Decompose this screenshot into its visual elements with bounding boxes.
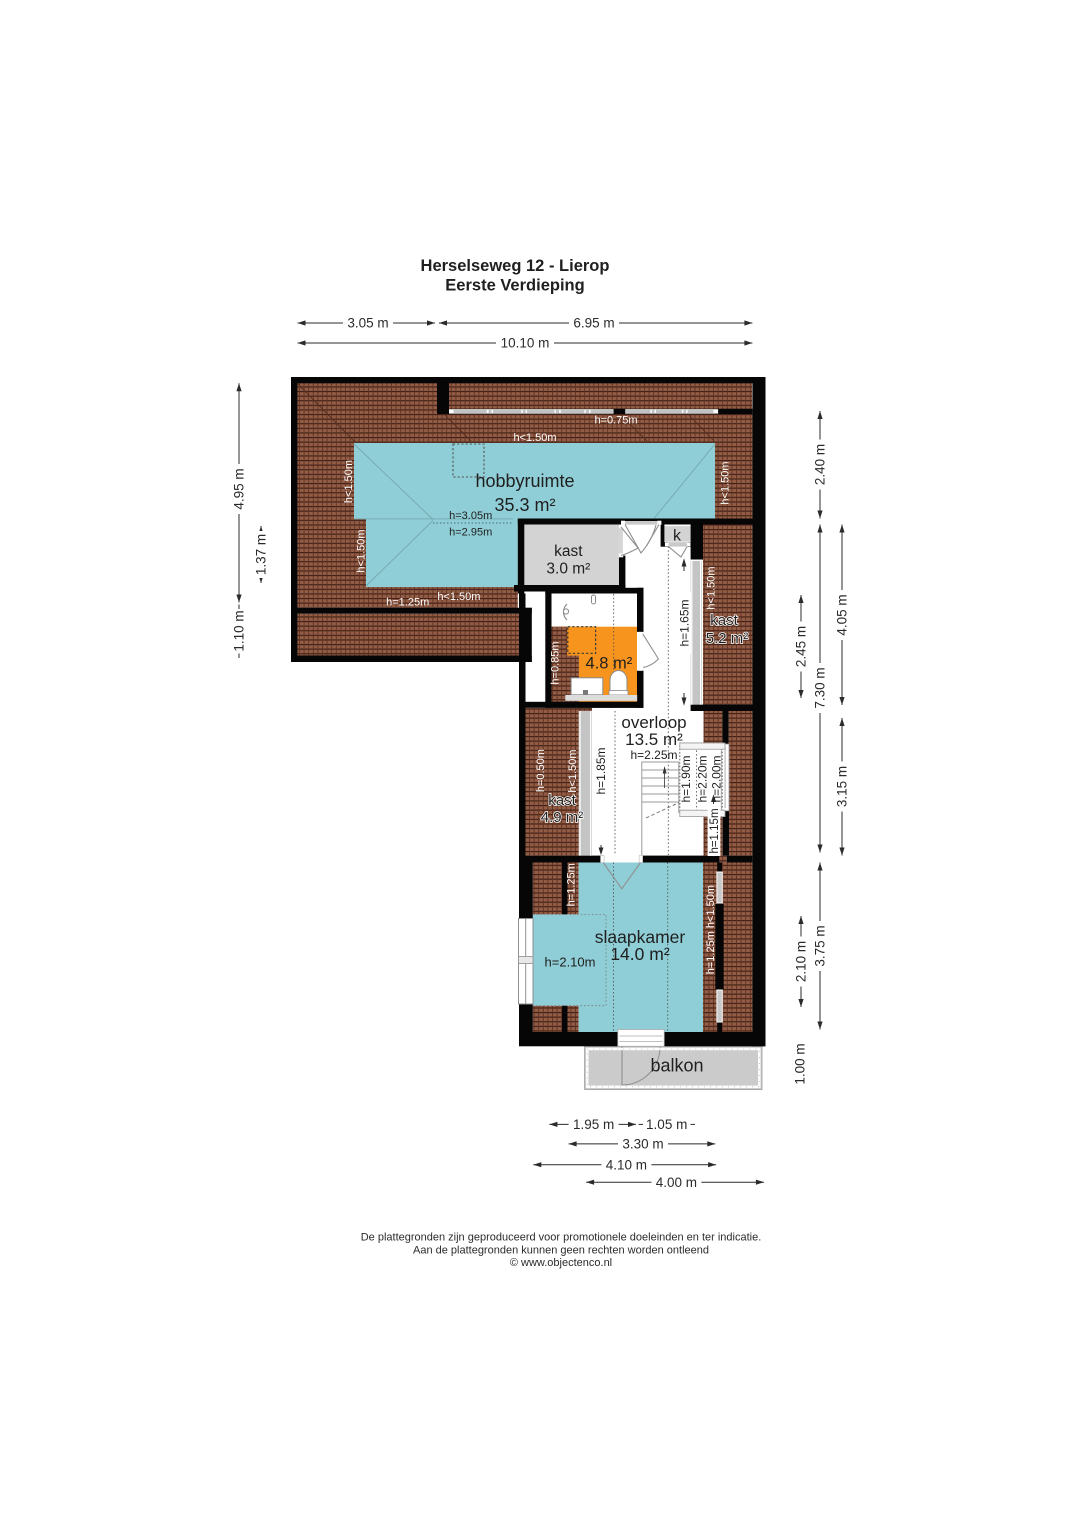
svg-text:balkon: balkon (650, 1056, 703, 1076)
svg-text:3.05 m: 3.05 m (347, 316, 388, 331)
svg-text:h=1.25m: h=1.25m (566, 863, 578, 906)
svg-text:13.5 m²: 13.5 m² (625, 730, 683, 749)
svg-text:h=1.90m: h=1.90m (679, 755, 693, 802)
svg-text:6.95 m: 6.95 m (573, 316, 614, 331)
svg-text:4.9 m²: 4.9 m² (541, 809, 584, 826)
svg-text:h=3.05m: h=3.05m (449, 510, 492, 522)
svg-text:h=2.95m: h=2.95m (449, 527, 492, 539)
svg-text:14.0 m²: 14.0 m² (610, 944, 669, 964)
svg-text:h=1.25m: h=1.25m (386, 597, 429, 609)
svg-text:h<1.50m: h<1.50m (437, 591, 480, 603)
svg-text:4.00 m: 4.00 m (656, 1175, 697, 1190)
svg-text:4.95 m: 4.95 m (232, 468, 247, 509)
svg-text:Eerste Verdieping: Eerste Verdieping (445, 277, 584, 295)
svg-text:h=1.85m: h=1.85m (594, 747, 608, 794)
svg-text:De plattegronden zijn geproduc: De plattegronden zijn geproduceerd voor … (361, 1232, 762, 1244)
svg-text:1.05 m: 1.05 m (646, 1117, 687, 1132)
svg-text:kast: kast (548, 792, 576, 809)
svg-text:h=2.20m: h=2.20m (695, 755, 709, 802)
svg-text:h<1.50m: h<1.50m (720, 461, 732, 504)
svg-text:2.40 m: 2.40 m (813, 444, 828, 485)
svg-text:4.05 m: 4.05 m (835, 594, 850, 635)
svg-text:10.10 m: 10.10 m (501, 336, 550, 351)
svg-text:h<1.50m: h<1.50m (567, 749, 579, 792)
svg-text:3.75 m: 3.75 m (813, 925, 828, 966)
svg-text:h<1.50m: h<1.50m (706, 566, 718, 609)
svg-text:35.3 m²: 35.3 m² (494, 495, 555, 515)
svg-text:3.15 m: 3.15 m (835, 766, 850, 807)
svg-text:h=1.15m: h=1.15m (709, 808, 721, 853)
svg-text:5.2 m²: 5.2 m² (706, 630, 749, 647)
svg-text:2.45 m: 2.45 m (794, 626, 809, 667)
svg-text:h=1.25m: h=1.25m (705, 931, 717, 974)
svg-text:1.95 m: 1.95 m (573, 1117, 614, 1132)
svg-text:h<1.50m: h<1.50m (343, 460, 355, 503)
svg-text:1.10 m: 1.10 m (232, 610, 247, 651)
svg-text:k: k (673, 528, 682, 545)
svg-text:h=2.25m: h=2.25m (630, 748, 677, 762)
svg-text:1.00 m: 1.00 m (793, 1043, 808, 1084)
svg-text:h<1.50m: h<1.50m (513, 432, 556, 444)
svg-text:4.8 m²: 4.8 m² (586, 655, 633, 673)
svg-text:2.10 m: 2.10 m (794, 941, 809, 982)
svg-text:Aan de plattegronden kunnen ge: Aan de plattegronden kunnen geen rechten… (413, 1245, 709, 1257)
svg-text:h=2.10m: h=2.10m (545, 955, 596, 970)
svg-text:kast: kast (554, 543, 583, 560)
svg-text:7.30 m: 7.30 m (813, 667, 828, 708)
svg-text:Herselseweg 12 - Lierop: Herselseweg 12 - Lierop (421, 257, 610, 275)
svg-text:h=0.75m: h=0.75m (594, 414, 637, 426)
svg-text:h<1.50m: h<1.50m (356, 529, 368, 572)
svg-text:h=1.65m: h=1.65m (677, 599, 691, 646)
svg-text:© www.objectenco.nl: © www.objectenco.nl (510, 1257, 612, 1269)
svg-text:h=2.00m: h=2.00m (709, 755, 723, 802)
svg-text:4.10 m: 4.10 m (606, 1157, 647, 1172)
svg-text:kast: kast (710, 612, 738, 629)
svg-text:h<1.50m: h<1.50m (705, 885, 717, 928)
svg-text:h=0.85m: h=0.85m (550, 641, 562, 684)
svg-text:3.0 m²: 3.0 m² (546, 561, 590, 578)
svg-text:1.37 m: 1.37 m (254, 534, 269, 575)
svg-text:3.30 m: 3.30 m (622, 1137, 663, 1152)
svg-text:hobbyruimte: hobbyruimte (475, 471, 574, 491)
svg-text:h=0.50m: h=0.50m (535, 749, 547, 792)
